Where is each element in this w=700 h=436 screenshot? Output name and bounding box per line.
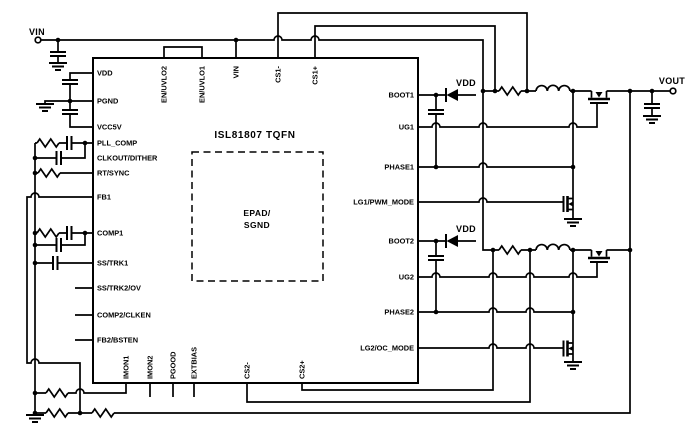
diode-boot1 [447, 89, 459, 101]
pin-label-cs2-plus: CS2+ [298, 360, 307, 379]
wire-ug2 [418, 262, 597, 277]
vout-terminal [670, 88, 676, 94]
resistor-rt-sync [38, 169, 60, 177]
inductor-phase2 [536, 244, 570, 250]
vin-terminal [35, 37, 41, 43]
mosfet-ls1 [564, 196, 574, 212]
chip-title: ISL81807 TQFN [214, 130, 295, 141]
resistor-sense1 [499, 87, 521, 95]
pin-label-vcc5v: VCC5V [97, 123, 122, 132]
pin-label-pgood: PGOOD [169, 351, 178, 379]
pin-label-en-uvlo2: EN/UVLO2 [160, 66, 169, 103]
resistor-imon1 [46, 389, 68, 397]
epad-label-line1: EPAD/ [243, 208, 271, 218]
resistor-sense2 [499, 246, 521, 254]
mosfet-ls2 [564, 341, 574, 357]
epad-label-line2: SGND [244, 220, 270, 230]
pin-label-imon2: IMON2 [146, 356, 155, 379]
pin-label-imon1: IMON1 [122, 356, 131, 379]
wire-boot1 [418, 95, 476, 167]
pin-label-ug1: UG1 [399, 123, 414, 132]
pin-label-extbias: EXTBIAS [190, 347, 199, 379]
wire-lg1 [418, 198, 564, 202]
pin-label-comp1: COMP1 [97, 229, 123, 238]
pin-label-clkout: CLKOUT/DITHER [97, 154, 158, 163]
wire-phase2 [418, 308, 573, 312]
pin-label-cs2-minus: CS2- [243, 362, 252, 379]
pin-label-rt-sync: RT/SYNC [97, 169, 130, 178]
pin-label-phase2: PHASE2 [384, 308, 414, 317]
schematic-page: VIN VOUT VDD VDD ISL81807 TQFN EPAD/ SGN… [0, 0, 700, 436]
pin-label-fb2-bsten: FB2/BSTEN [97, 336, 138, 345]
resistor-fb-upper [92, 409, 114, 417]
circuit-schematic: VIN VOUT VDD VDD ISL81807 TQFN EPAD/ SGN… [0, 0, 700, 436]
resistor-comp1 [37, 229, 59, 237]
pin-label-en-uvlo1: EN/UVLO1 [198, 66, 207, 103]
vdd-label-ch1: VDD [456, 78, 476, 88]
pin-label-boot2: BOOT2 [389, 237, 414, 246]
wire-lg2 [418, 344, 564, 348]
pin-label-comp2: COMP2/CLKEN [97, 311, 151, 320]
pin-label-boot1: BOOT1 [389, 91, 414, 100]
pin-label-fb1: FB1 [97, 193, 111, 202]
resistor-pll [37, 139, 59, 147]
pin-label-vdd: VDD [97, 69, 113, 78]
vin-label: VIN [29, 27, 45, 37]
vout-label: VOUT [659, 76, 685, 86]
wire-fb1-trace [27, 193, 93, 413]
wire-ug1 [418, 103, 597, 127]
inductor-phase1 [536, 85, 570, 91]
pin-label-vin-pin: VIN [232, 66, 241, 78]
wire-en-uvlo-bridge [164, 47, 202, 58]
pin-label-phase1: PHASE1 [384, 163, 414, 172]
pin-label-cs1-plus: CS1+ [311, 65, 320, 84]
pin-label-cs1-minus: CS1- [274, 65, 283, 82]
mosfet-hs1 [588, 91, 610, 103]
wire-phase1-power-line [521, 91, 670, 219]
wire-left-stubs [75, 288, 93, 340]
pin-label-lg1-pwm-mode: LG1/PWM_MODE [353, 198, 414, 207]
wire-phase2-power-line [521, 250, 630, 362]
vdd-label-ch2: VDD [456, 224, 476, 234]
pin-label-ss-trk2-ov: SS/TRK2/OV [97, 284, 141, 293]
wire-phase1 [418, 163, 573, 167]
pin-label-ug2: UG2 [399, 273, 414, 282]
mosfet-hs2 [588, 250, 610, 262]
pin-label-pgnd: PGND [97, 97, 119, 106]
pin-label-ss-trk1: SS/TRK1 [97, 259, 128, 268]
wire-bottom-stubs [150, 383, 194, 397]
pin-label-pll-comp: PLL_COMP [97, 139, 137, 148]
resistor-fb-lower [46, 409, 68, 417]
diode-boot2 [447, 235, 459, 247]
pin-label-lg2-oc-mode: LG2/OC_MODE [360, 344, 414, 353]
